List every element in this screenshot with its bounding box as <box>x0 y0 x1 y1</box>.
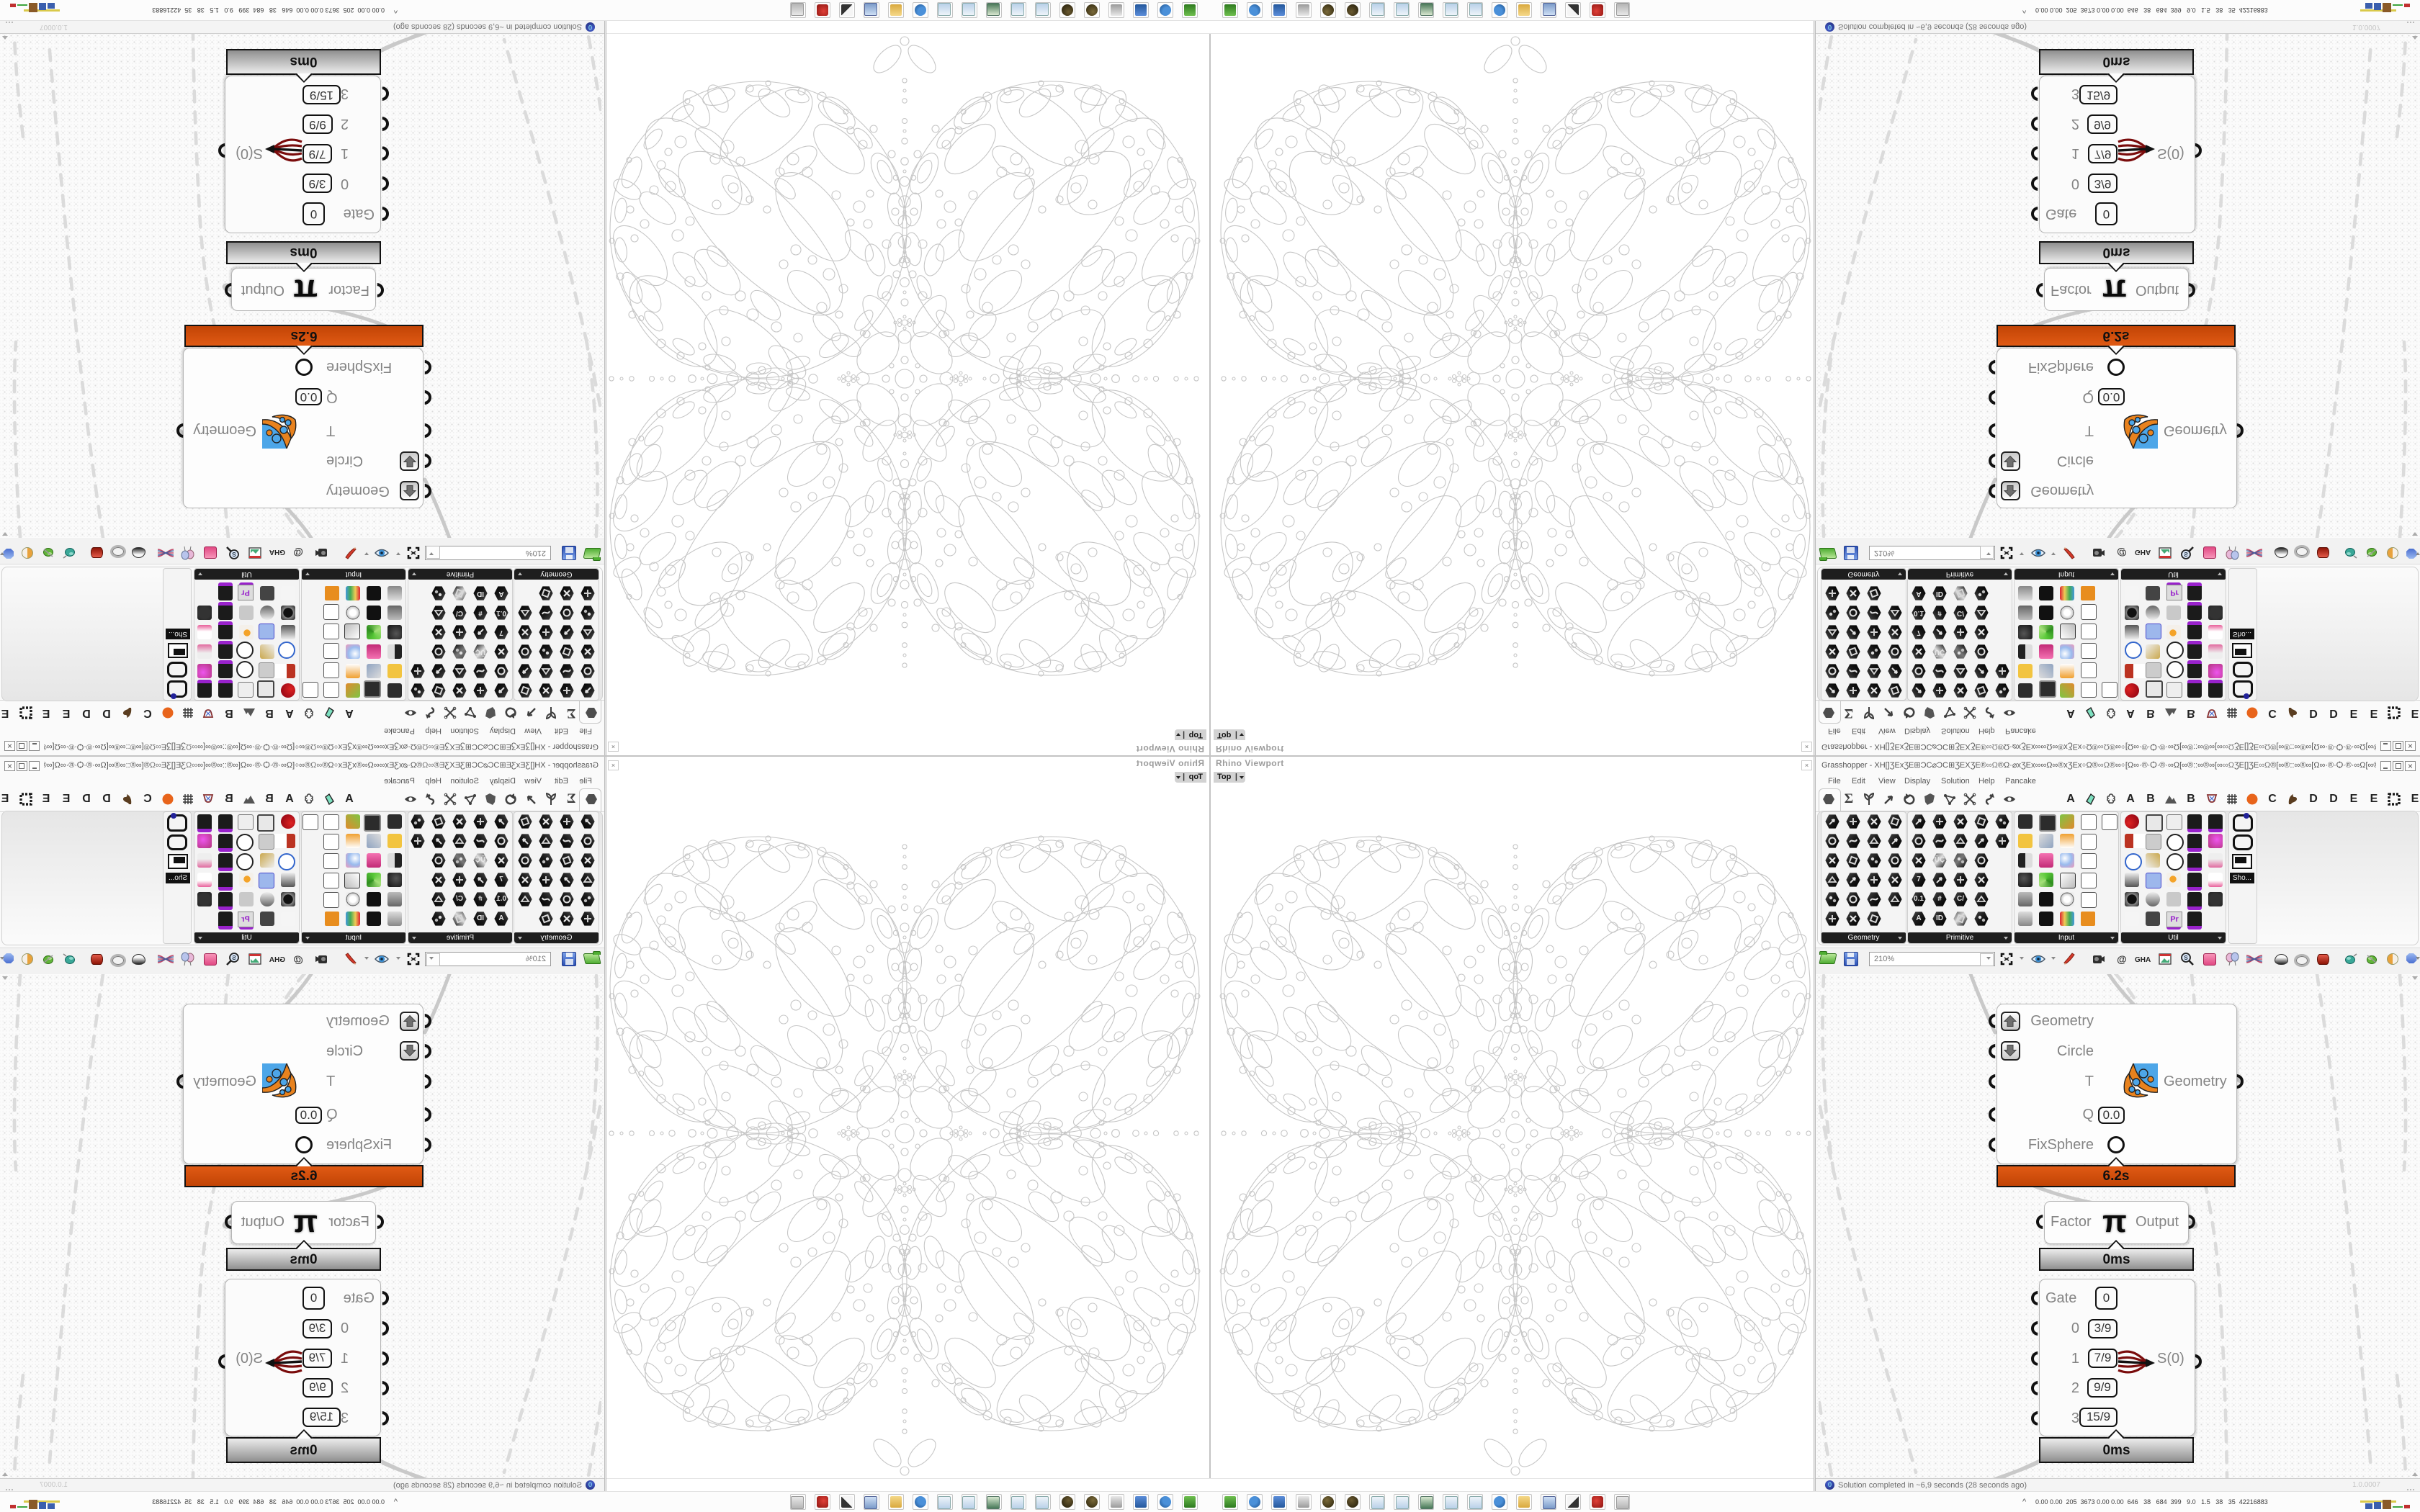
svg-text:S: S <box>232 551 236 557</box>
svg-text:S: S <box>232 955 236 961</box>
svg-text:S: S <box>2184 955 2188 961</box>
svg-text:S: S <box>2184 551 2188 557</box>
